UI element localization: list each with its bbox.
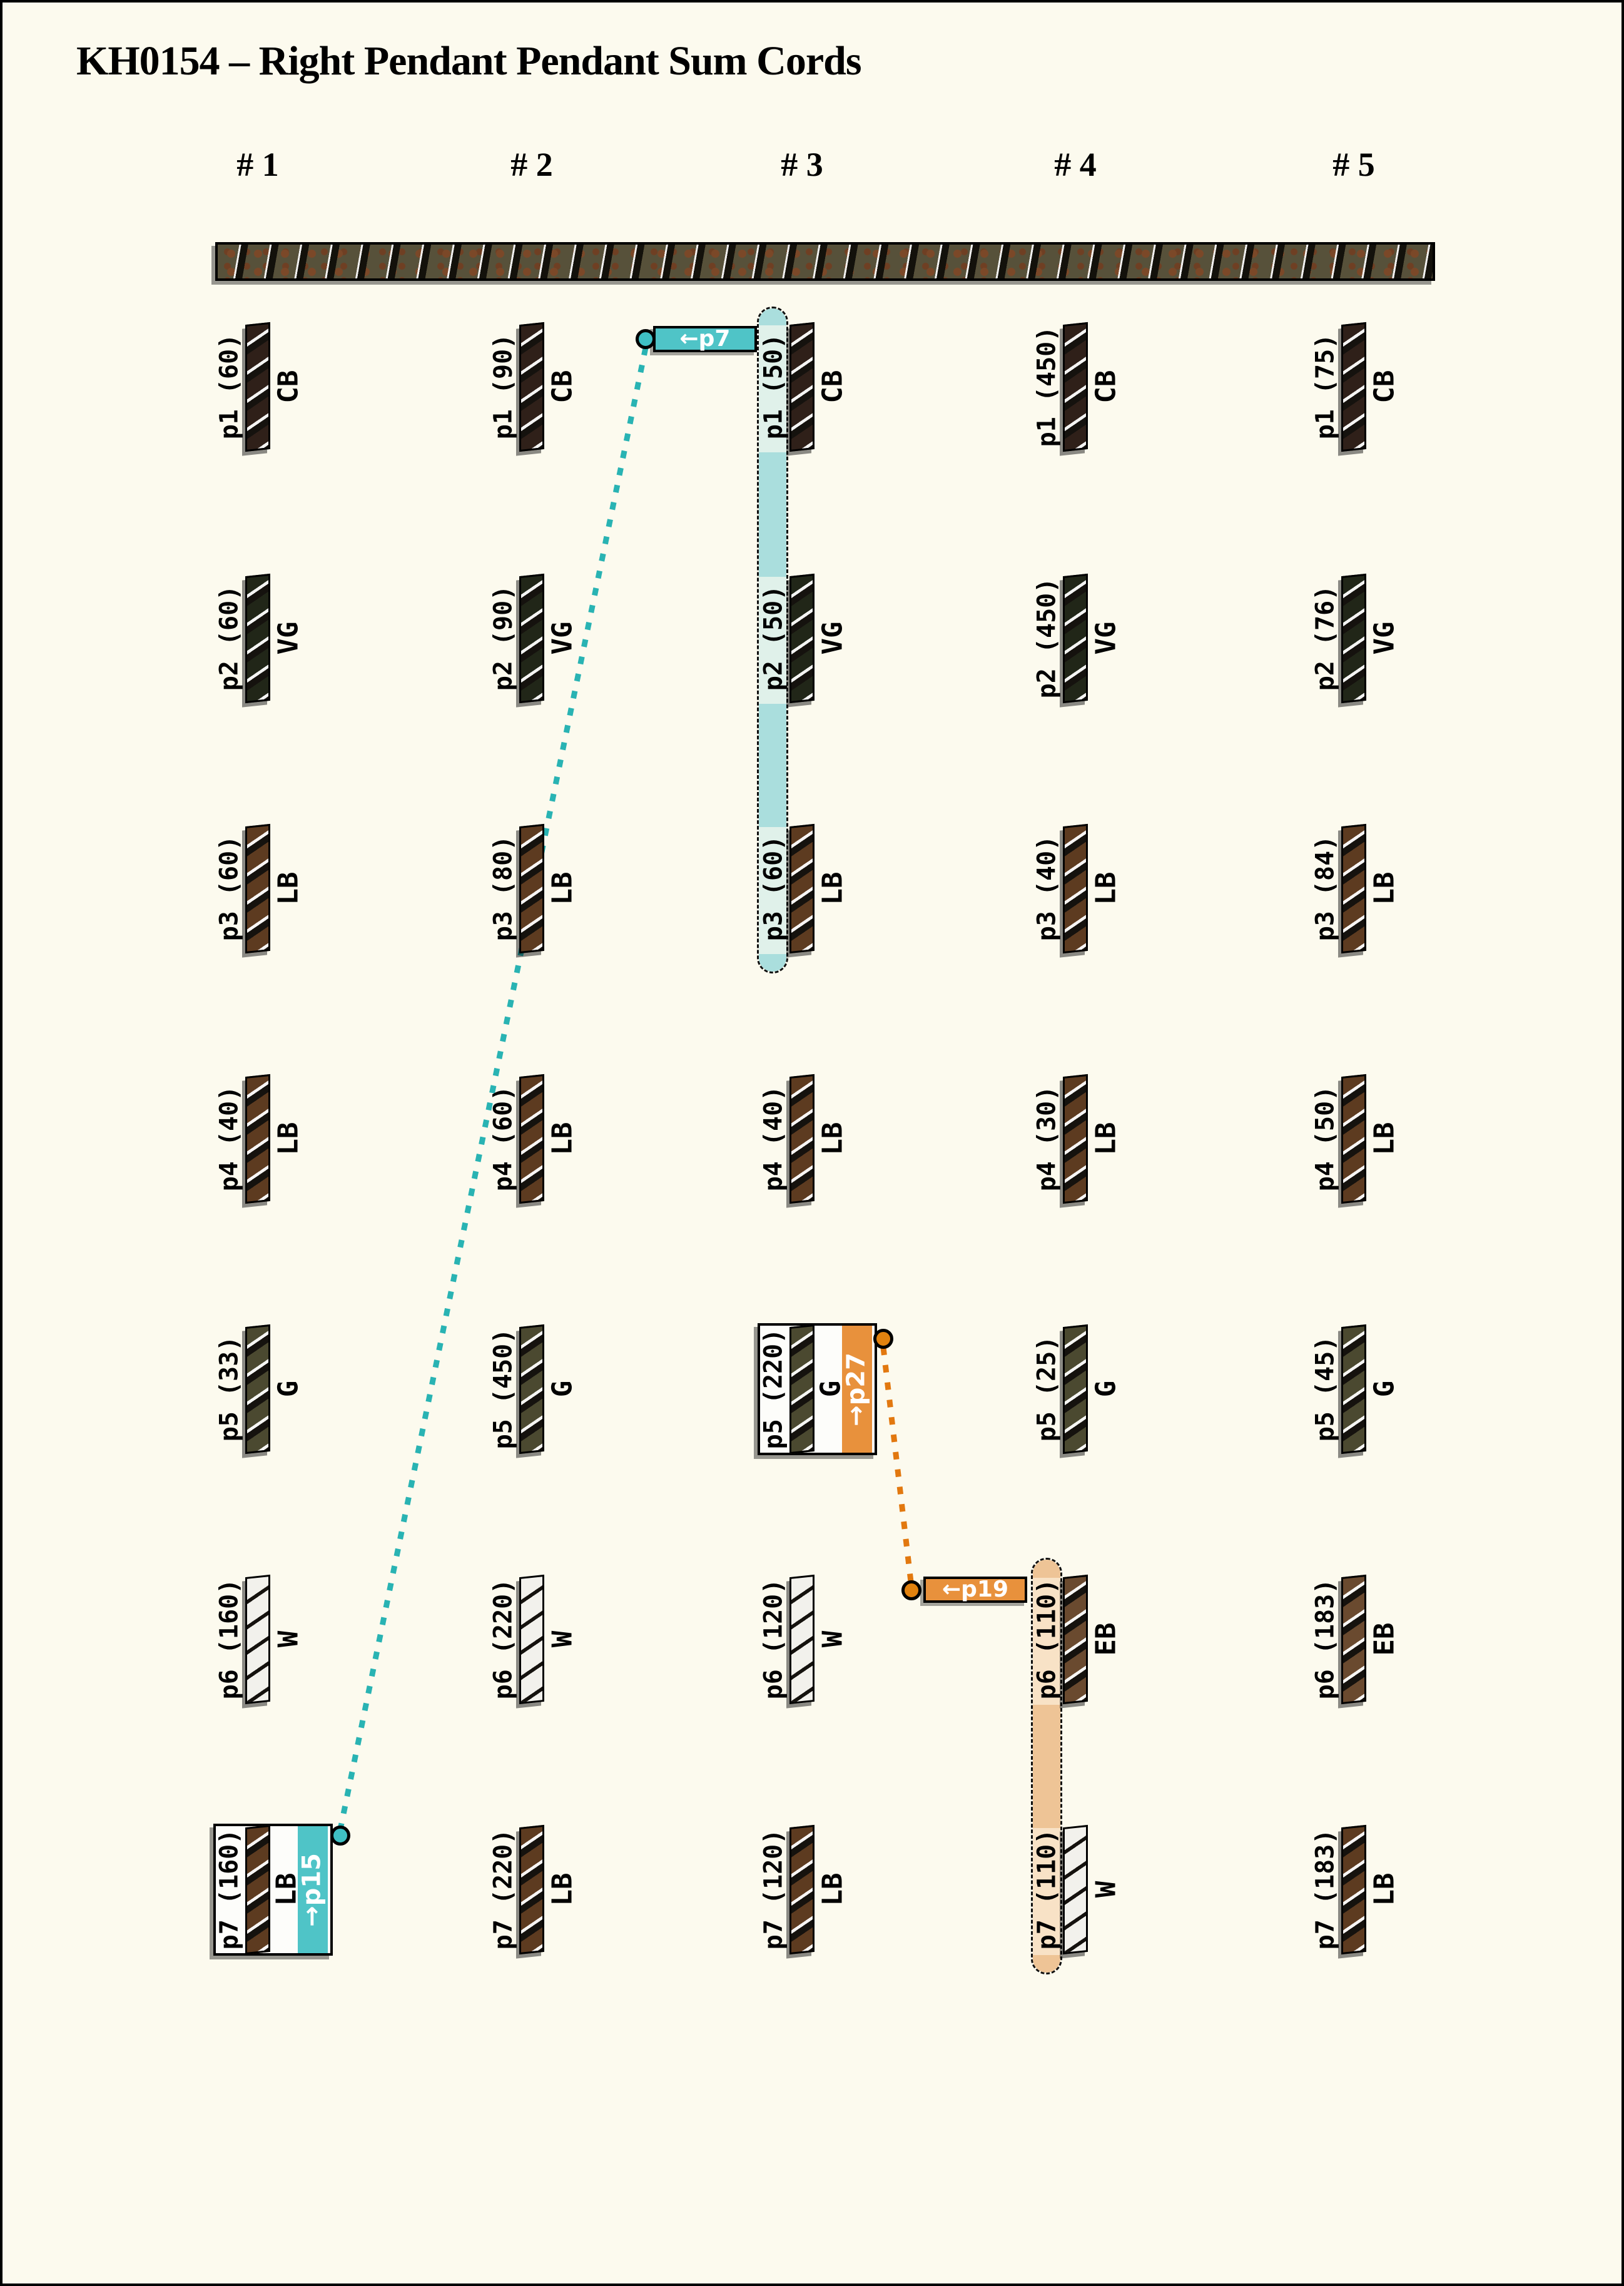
pendant-bar xyxy=(245,1074,270,1204)
pointer-box-p7: ←p7 xyxy=(653,326,757,352)
pendant-c2-p7: p7 (220)LB xyxy=(519,1826,544,1953)
column-header-3: # 3 xyxy=(733,145,871,184)
pendant-c4-p2: p2 (450)VG xyxy=(1063,575,1088,702)
pendant-bar xyxy=(1063,824,1088,953)
pendant-c1-p6: p6 (160)W xyxy=(245,1576,270,1703)
pendant-c2-p5: p5 (450)G xyxy=(519,1326,544,1453)
pendant-bar xyxy=(245,1324,270,1454)
pendant-c1-p3: p3 (60)LB xyxy=(245,825,270,952)
pendant-c2-p6: p6 (220)W xyxy=(519,1576,544,1703)
pendant-bar xyxy=(519,574,544,703)
link-dot-teal-top xyxy=(636,329,656,349)
column-header-5: # 5 xyxy=(1285,145,1423,184)
link-dot-orange-bottom xyxy=(901,1580,921,1600)
pendant-bar xyxy=(1063,1825,1088,1954)
sum-strip-p27: →p27 xyxy=(842,1326,872,1453)
pendant-bar xyxy=(1341,1825,1366,1954)
pendant-c3-p6: p6 (120)W xyxy=(789,1576,815,1703)
pendant-bar xyxy=(789,1825,815,1954)
pendant-bar xyxy=(519,1074,544,1204)
pendant-bar xyxy=(519,824,544,953)
pendant-bar xyxy=(519,1575,544,1704)
pendant-c5-p5: p5 (45)G xyxy=(1341,1326,1366,1453)
pendant-bar xyxy=(789,322,815,452)
pointer-box-p19: ←p19 xyxy=(923,1577,1027,1603)
column-header-2: # 2 xyxy=(463,145,601,184)
pendant-bar xyxy=(245,322,270,452)
pendant-c2-p4: p4 (60)LB xyxy=(519,1075,544,1202)
pendant-c2-p2: p2 (90)VG xyxy=(519,575,544,702)
pendant-c4-p3: p3 (40)LB xyxy=(1063,825,1088,952)
pendant-bar xyxy=(245,574,270,703)
pendant-bar xyxy=(1341,574,1366,703)
khipu-diagram-page: KH0154 – Right Pendant Pendant Sum Cords… xyxy=(0,0,1624,2286)
pendant-bar xyxy=(519,1324,544,1454)
sum-strip-p15: →p15 xyxy=(298,1826,328,1953)
pendant-bar xyxy=(1063,1575,1088,1704)
pendant-bar xyxy=(789,1074,815,1204)
pendant-c3-p1: p1 (50)CB xyxy=(789,323,815,450)
pendant-bar xyxy=(1063,1324,1088,1454)
diagram-title: KH0154 – Right Pendant Pendant Sum Cords xyxy=(76,38,861,85)
pendant-c3-p7: p7 (120)LB xyxy=(789,1826,815,1953)
pendant-c4-p1: p1 (450)CB xyxy=(1063,323,1088,450)
pendant-bar xyxy=(1341,1575,1366,1704)
pendant-bar xyxy=(1063,1074,1088,1204)
pendant-c5-p4: p4 (50)LB xyxy=(1341,1075,1366,1202)
pendant-bar xyxy=(1341,322,1366,452)
pendant-c5-p6: p6 (183)EB xyxy=(1341,1576,1366,1703)
pendant-c4-p5: p5 (25)G xyxy=(1063,1326,1088,1453)
pendant-c5-p3: p3 (84)LB xyxy=(1341,825,1366,952)
pendant-c5-p1: p1 (75)CB xyxy=(1341,323,1366,450)
pendant-bar xyxy=(245,1575,270,1704)
column-header-1: # 1 xyxy=(189,145,327,184)
pendant-c1-p2: p2 (60)VG xyxy=(245,575,270,702)
pendant-bar xyxy=(1063,322,1088,452)
pendant-bar xyxy=(789,574,815,703)
pendant-bar xyxy=(1341,1324,1366,1454)
pendant-bar xyxy=(789,1324,815,1454)
pendant-c5-p7: p7 (183)LB xyxy=(1341,1826,1366,1953)
pendant-group-c3-p5: p5 (220) G →p27 xyxy=(758,1323,877,1455)
pendant-c1-p4: p4 (40)LB xyxy=(245,1075,270,1202)
primary-cord-bar xyxy=(215,242,1435,281)
pendant-bar xyxy=(1063,574,1088,703)
link-dot-orange-top xyxy=(873,1329,893,1349)
pendant-bar xyxy=(789,1575,815,1704)
pendant-c4-p4: p4 (30)LB xyxy=(1063,1075,1088,1202)
pendant-bar xyxy=(519,322,544,452)
column-header-4: # 4 xyxy=(1007,145,1144,184)
orange-link-line xyxy=(883,1348,911,1582)
pendant-c2-p3: p3 (80)LB xyxy=(519,825,544,952)
pendant-group-c1-p7: p7 (160) LB →p15 xyxy=(213,1824,333,1956)
pendant-bar xyxy=(1341,1074,1366,1204)
pendant-c1-p5: p5 (33)G xyxy=(245,1326,270,1453)
pendant-c4-p6: p6 (110)EB xyxy=(1063,1576,1088,1703)
pendant-bar xyxy=(519,1825,544,1954)
pendant-c1-p1: p1 (60)CB xyxy=(245,323,270,450)
pendant-c3-p3: p3 (60)LB xyxy=(789,825,815,952)
pendant-bar xyxy=(245,1825,270,1954)
pendant-c4-p7: p7 (110)W xyxy=(1063,1826,1088,1953)
pendant-c5-p2: p2 (76)VG xyxy=(1341,575,1366,702)
pendant-c2-p1: p1 (90)CB xyxy=(519,323,544,450)
link-dot-teal-bottom xyxy=(330,1826,350,1846)
pendant-bar xyxy=(789,824,815,953)
pendant-bar xyxy=(245,824,270,953)
pendant-c3-p2: p2 (50)VG xyxy=(789,575,815,702)
pendant-bar xyxy=(1341,824,1366,953)
pendant-c3-p4: p4 (40)LB xyxy=(789,1075,815,1202)
